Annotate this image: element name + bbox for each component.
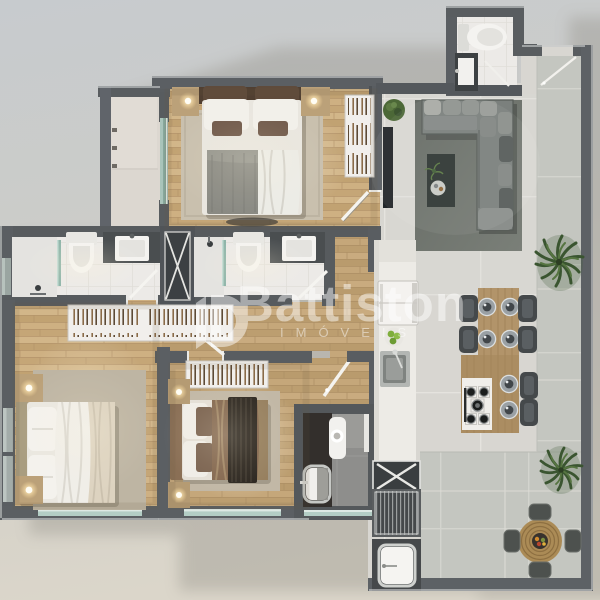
svg-text:IMÓVEIS: IMÓVEIS (280, 325, 418, 340)
svg-text:Battiston: Battiston (237, 275, 467, 332)
